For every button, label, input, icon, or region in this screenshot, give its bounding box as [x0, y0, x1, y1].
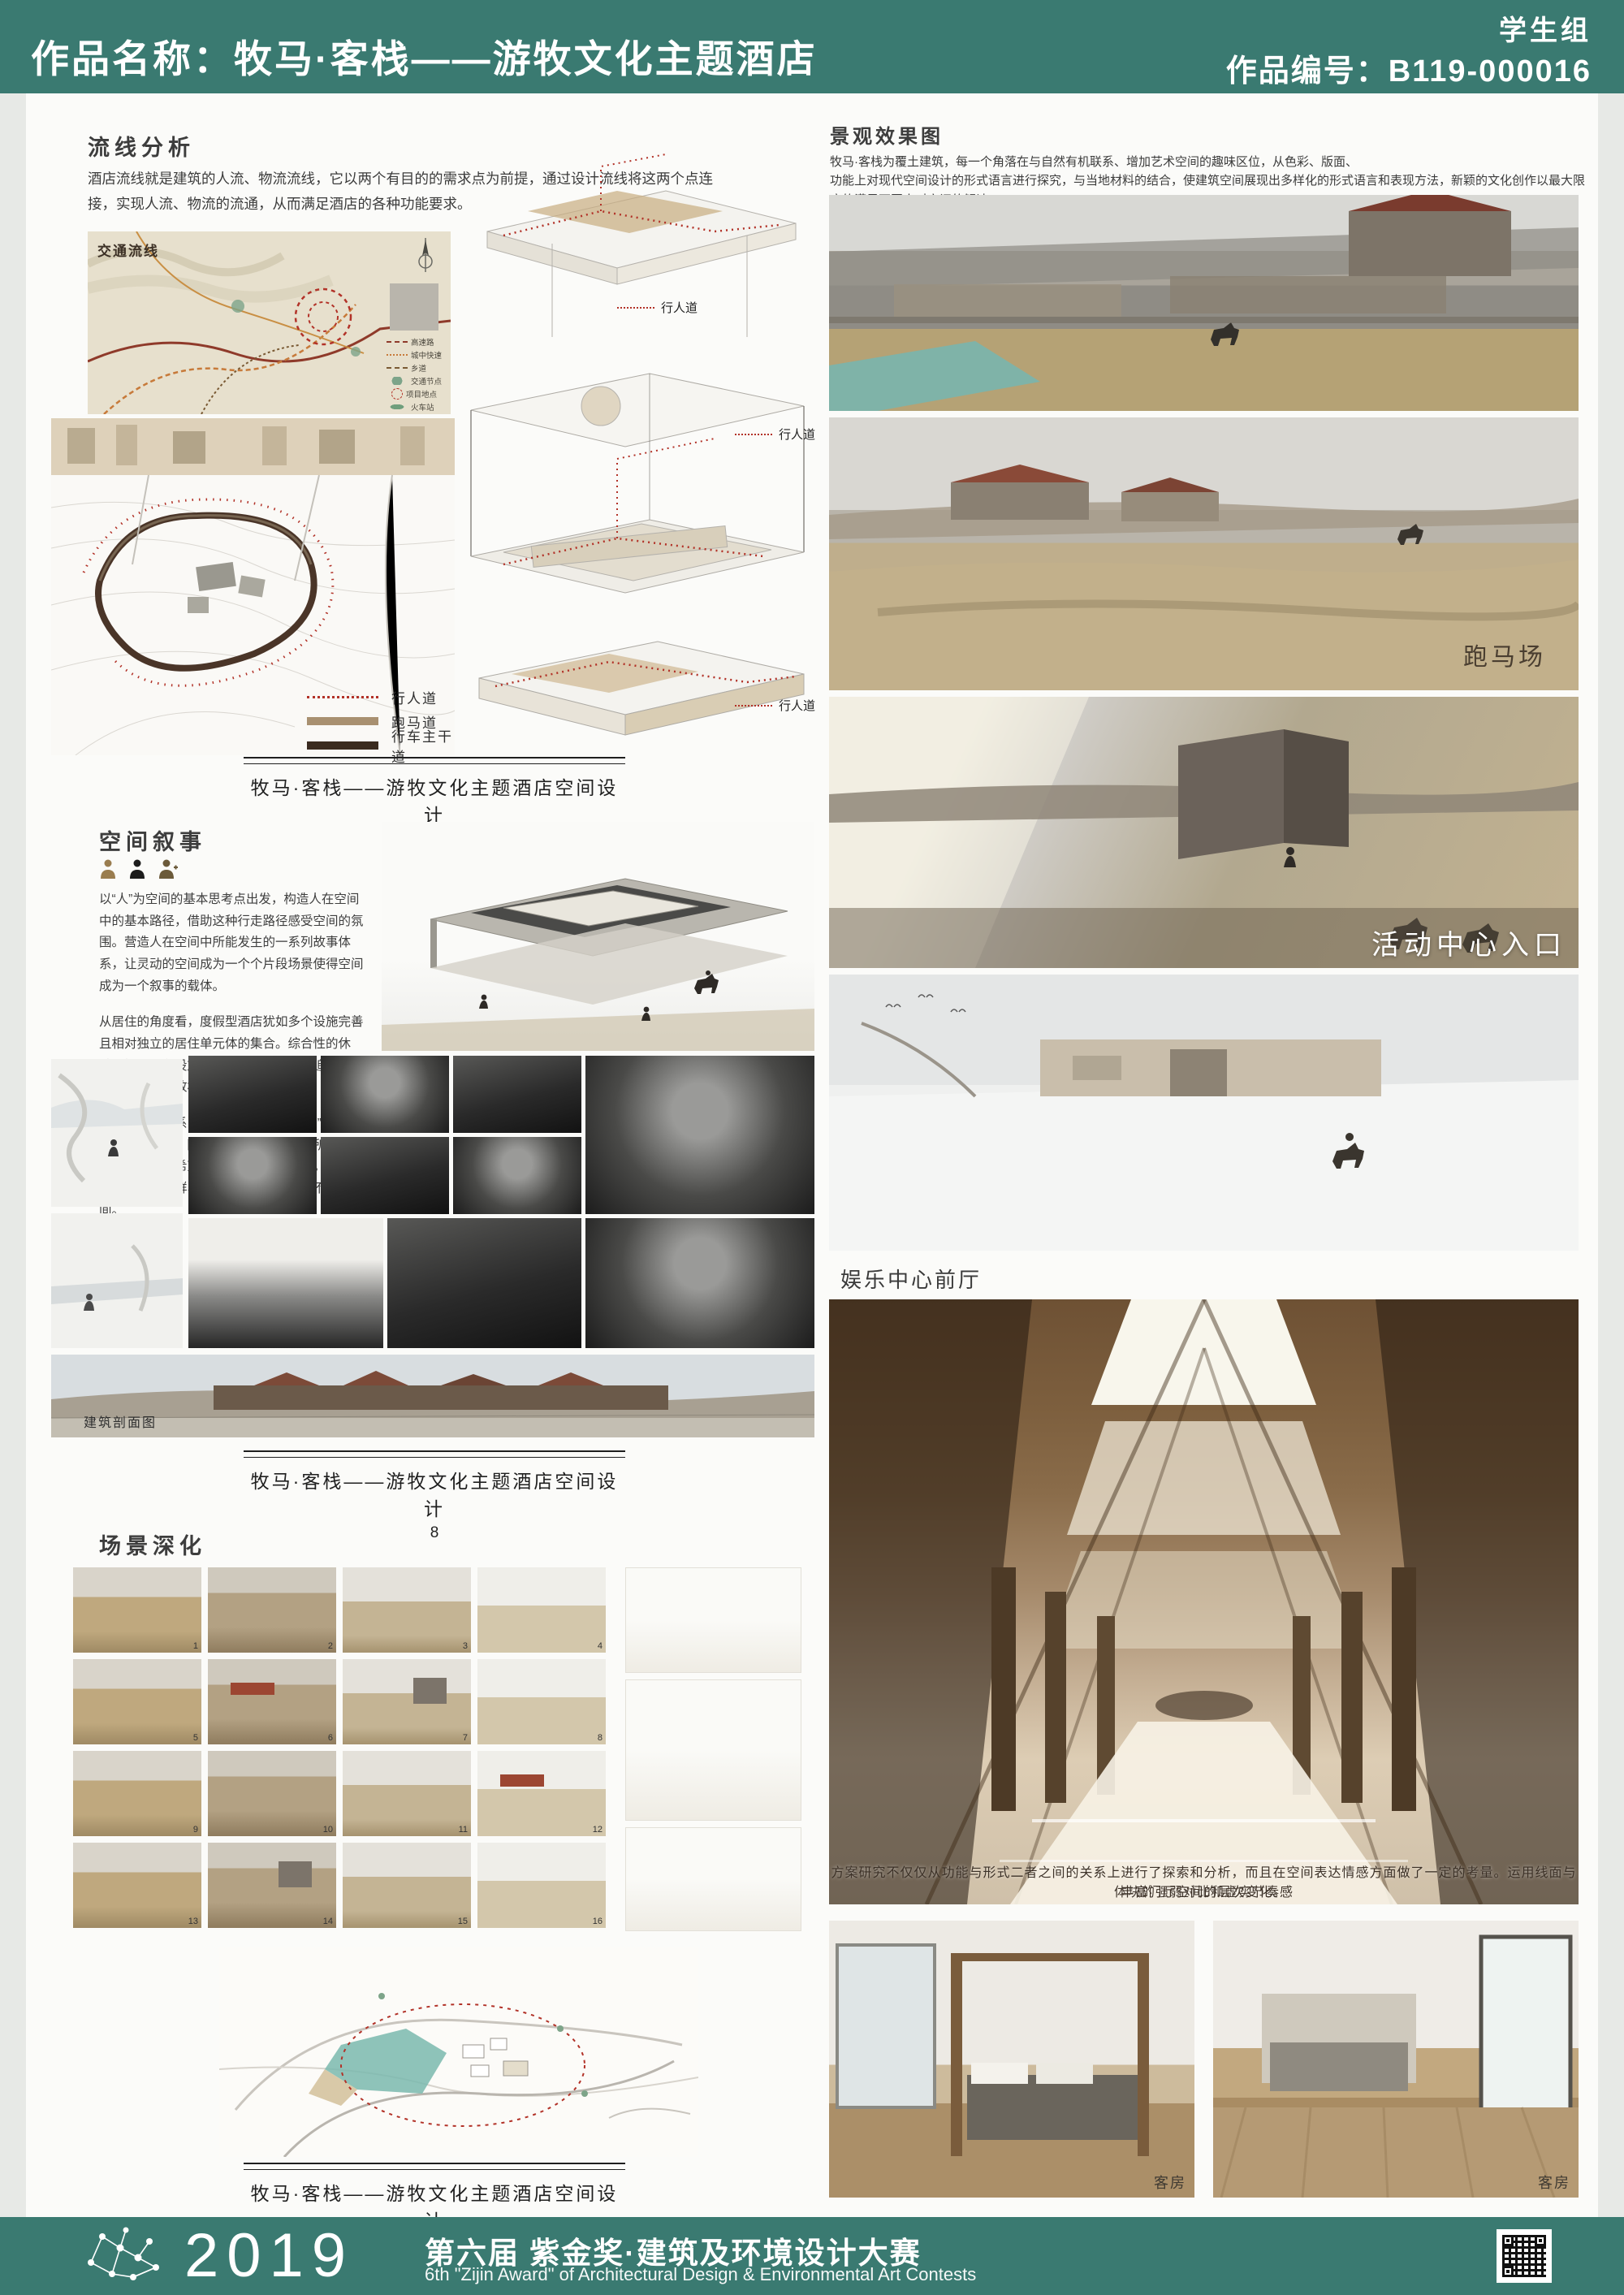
- renderings-heading: 景观效果图: [830, 120, 944, 149]
- country-road-line-icon: [387, 367, 408, 369]
- person-icon: [99, 859, 117, 879]
- sketch-interior-thumb: [51, 1059, 183, 1207]
- interior-render-thumb: [321, 1137, 449, 1214]
- leader-line: [735, 434, 772, 435]
- scene-number: 4: [598, 1641, 603, 1651]
- interior-render-thumb: [453, 1137, 581, 1214]
- legend-label: 交通节点: [411, 375, 442, 387]
- compass-icon: [411, 236, 440, 278]
- guest-room-render: 客房: [829, 1921, 1194, 2198]
- legend-label: 城中快速: [411, 349, 442, 361]
- axon-diagram-3: [455, 613, 814, 759]
- sketch-interior-thumb: [51, 1213, 183, 1348]
- zijin-award-logo: [81, 2224, 171, 2293]
- legend-label: 乡道: [411, 362, 426, 374]
- scene-number: 8: [598, 1733, 603, 1743]
- guest-room-label: 客房: [1154, 2172, 1186, 2193]
- site-plan: 行人道 跑马道 行车主干道: [51, 418, 455, 755]
- scene-grid: 1 2 3 4 5 6 7 8 9 10 11 12 13 14 15 16: [73, 1567, 606, 1928]
- main-road-line-icon: [307, 741, 378, 750]
- building-section-panorama: 建筑剖面图: [51, 1355, 814, 1437]
- scene-thumb: 9: [73, 1751, 201, 1836]
- scene-number: 11: [459, 1825, 468, 1835]
- interior-render-thumb: [188, 1056, 317, 1133]
- qr-finder: [1502, 2266, 1514, 2277]
- intro-line-1: 牧马·客栈为覆土建筑，每一个角落在与自然有机联系、增加艺术空间的趣味区位，从色彩…: [830, 153, 1585, 171]
- scene-sketch-thumb: [625, 1827, 801, 1931]
- atrium-note-line-2: 丰富门厅空间的层次变化。: [829, 1881, 1579, 1900]
- entry-number-label: 作品编号：B119-000016: [1226, 45, 1592, 90]
- walkway-label: 行人道: [661, 299, 698, 316]
- footpath-line-icon: [307, 696, 378, 698]
- caption-page-number: 8: [244, 1524, 625, 1542]
- scene-thumb: 10: [208, 1751, 336, 1836]
- scene-thumb: 16: [477, 1843, 606, 1928]
- racetrack-label: 跑马场: [1463, 637, 1546, 672]
- legend-item: 行人道: [307, 685, 455, 709]
- scene-number: 15: [458, 1917, 468, 1926]
- rule: [244, 757, 625, 764]
- aerial-site-illustration: [219, 1947, 698, 2157]
- scene-number: 16: [593, 1917, 603, 1926]
- guest-room-label: 客房: [1538, 2172, 1570, 2193]
- scene-thumb: 11: [343, 1751, 471, 1836]
- racetrack-render: 跑马场: [829, 417, 1579, 690]
- atrium-render: 方案研究不仅仅从功能与形式二者之间的关系上进行了探索和分析，而且在空间表达情感方…: [829, 1299, 1579, 1904]
- walkway-callout: 行人道: [735, 697, 815, 714]
- scene-number: 2: [328, 1641, 333, 1651]
- poster-page: 作品名称：牧马·客栈——游牧文化主题酒店 学生组 作品编号：B119-00001…: [0, 0, 1624, 2295]
- scene-number: 10: [323, 1825, 333, 1835]
- interior-render-thumb: [585, 1056, 814, 1214]
- walkway-label: 行人道: [779, 426, 815, 443]
- legend-item: 行车主干道: [307, 733, 455, 758]
- map-inset-photo: [390, 283, 438, 331]
- legend-label: 火车站: [411, 401, 434, 413]
- interior-render-thumb: [387, 1218, 581, 1348]
- legend-item: 项目地点: [387, 387, 448, 400]
- person-icon: [128, 859, 146, 879]
- interior-render-thumb: [188, 1218, 383, 1348]
- scene-thumb: 8: [477, 1659, 606, 1744]
- traffic-map-title: 交通流线: [97, 240, 159, 260]
- person-plus-icon: [158, 859, 179, 879]
- qr-finder: [1535, 2235, 1546, 2246]
- scene-thumb: 2: [208, 1567, 336, 1653]
- footer-title-en: 6th "Zijin Award" of Architectural Desig…: [425, 2264, 976, 2285]
- scene-number: 1: [193, 1641, 198, 1651]
- header-bar: 作品名称：牧马·客栈——游牧文化主题酒店 学生组 作品编号：B119-00001…: [0, 0, 1624, 93]
- qr-finder: [1502, 2235, 1514, 2246]
- project-site-icon: [391, 388, 403, 400]
- page-title: 作品名称：牧马·客栈——游牧文化主题酒店: [31, 28, 818, 84]
- scene-thumb: 7: [343, 1659, 471, 1744]
- walkway-label: 行人道: [779, 697, 815, 714]
- scene-number: 6: [328, 1733, 333, 1743]
- legend-item: 火车站: [387, 400, 448, 413]
- section-caption-8: 牧马·客栈——游牧文化主题酒店空间设计 8: [244, 1450, 625, 1549]
- person-icons: [99, 859, 179, 879]
- legend-label: 行人道: [391, 687, 438, 707]
- leader-line: [735, 705, 772, 707]
- traffic-map-legend: 高速路 城中快速 乡道 交通节点 项目地点 火车站 飞机场: [387, 335, 448, 414]
- scene-thumb: 14: [208, 1843, 336, 1928]
- scene-number: 3: [463, 1641, 468, 1651]
- leader-line: [617, 307, 654, 309]
- scene-thumb: 1: [73, 1567, 201, 1653]
- legend-item: 交通节点: [387, 374, 448, 387]
- axon-diagram-1: [455, 134, 814, 357]
- traffic-node-icon: [387, 377, 408, 385]
- scene-thumb: 6: [208, 1659, 336, 1744]
- entry-group-label: 学生组: [1499, 8, 1592, 48]
- activity-entrance-render: 活动中心入口: [829, 697, 1579, 968]
- interior-render-thumb: [321, 1056, 449, 1133]
- caption-title: 牧马·客栈——游牧文化主题酒店空间设计: [244, 772, 625, 828]
- snow-scene-render: [829, 975, 1579, 1251]
- footer-bar: 2019 第六届 紫金奖·建筑及环境设计大赛 6th "Zijin Award"…: [0, 2217, 1624, 2295]
- courtyard-render: [829, 195, 1579, 411]
- scene-thumb: 5: [73, 1659, 201, 1744]
- scene-thumb: 4: [477, 1567, 606, 1653]
- narrative-heading: 空间叙事: [99, 824, 206, 856]
- activity-entrance-label: 活动中心入口: [1371, 923, 1566, 962]
- traffic-map: 交通流线 高速路 城中快速 乡道 交通节点 项目地点 火车站 飞机场: [88, 231, 451, 414]
- interior-render-thumb: [585, 1218, 814, 1348]
- rule: [244, 1450, 625, 1458]
- axon-diagram-2: [455, 361, 814, 609]
- horse-track-line-icon: [307, 717, 378, 725]
- walkway-callout: 行人道: [617, 299, 698, 316]
- scene-number: 13: [188, 1917, 198, 1926]
- qr-code: [1497, 2229, 1552, 2283]
- legend-item: 乡道: [387, 361, 448, 374]
- lobby-label: 娱乐中心前厅: [840, 1264, 982, 1294]
- scene-thumb: 15: [343, 1843, 471, 1928]
- scene-sketch-thumb: [625, 1679, 801, 1821]
- scene-thumb: 12: [477, 1751, 606, 1836]
- walkway-callout: 行人道: [735, 426, 815, 443]
- scene-number: 14: [323, 1917, 333, 1926]
- hotel-axon-render: [382, 822, 814, 1051]
- rule: [244, 2163, 625, 2170]
- legend-item: 城中快速: [387, 348, 448, 361]
- scene-thumb: 13: [73, 1843, 201, 1928]
- scene-number: 12: [593, 1825, 603, 1835]
- flow-analysis-heading: 流线分析: [88, 130, 195, 162]
- scene-number: 5: [193, 1733, 198, 1743]
- interior-render-thumb: [453, 1056, 581, 1133]
- qr-pattern: [1502, 2235, 1546, 2277]
- scene-number: 9: [193, 1825, 198, 1835]
- legend-label: 高速路: [411, 336, 434, 348]
- scenes-heading: 场景深化: [99, 1528, 206, 1560]
- caption-title: 牧马·客栈——游牧文化主题酒店空间设计: [244, 1466, 625, 1521]
- scene-sketch-thumb: [625, 1567, 801, 1673]
- footer-year: 2019: [184, 2220, 354, 2291]
- highway-line-icon: [387, 341, 408, 343]
- legend-item: 高速路: [387, 335, 448, 348]
- scene-number: 7: [463, 1733, 468, 1743]
- expressway-line-icon: [387, 354, 408, 356]
- legend-label: 项目地点: [406, 388, 437, 400]
- interior-render-thumb: [188, 1137, 317, 1214]
- guest-room-render: 客房: [1213, 1921, 1579, 2198]
- narrative-paragraph-1: 以“人”为空间的基本思考点出发，构造人在空间中的基本路径，借助这种行走路径感受空…: [99, 889, 370, 997]
- train-station-icon: [387, 403, 408, 411]
- legend-item: 飞机场: [387, 413, 448, 414]
- section-panorama-label: 建筑剖面图: [84, 1411, 157, 1431]
- scene-thumb: 3: [343, 1567, 471, 1653]
- site-plan-legend: 行人道 跑马道 行车主干道: [307, 685, 455, 758]
